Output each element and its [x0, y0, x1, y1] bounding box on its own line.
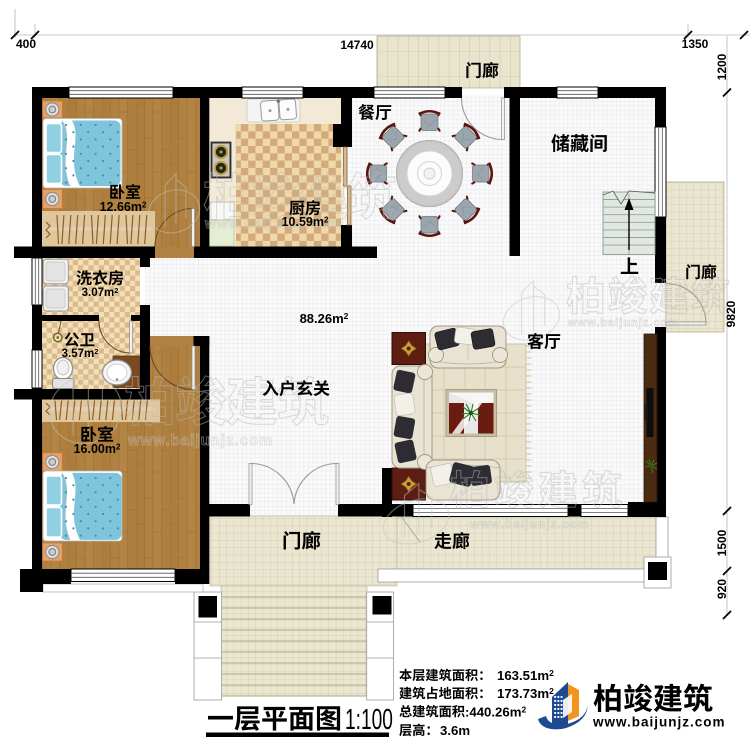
svg-text:14740: 14740: [340, 38, 374, 52]
svg-text:173.73m2: 173.73m2: [497, 686, 554, 701]
svg-text:www.baijunjz.com: www.baijunjz.com: [469, 517, 590, 531]
svg-text:1200: 1200: [715, 53, 729, 80]
svg-text::440.26m2: :440.26m2: [465, 704, 526, 719]
svg-text:1350: 1350: [682, 37, 709, 51]
svg-text:163.51m2: 163.51m2: [497, 668, 554, 683]
svg-text:3.07m2: 3.07m2: [82, 286, 119, 299]
svg-text:12.66m2: 12.66m2: [100, 200, 147, 214]
svg-text:9820: 9820: [724, 300, 738, 327]
svg-text:1500: 1500: [715, 529, 729, 556]
svg-text:3.57m2: 3.57m2: [62, 347, 99, 360]
svg-text:www.baijunjz.com: www.baijunjz.com: [127, 432, 273, 449]
svg-text:920: 920: [715, 579, 729, 599]
svg-text:3.6m: 3.6m: [440, 723, 470, 738]
svg-text:16.00m2: 16.00m2: [74, 442, 121, 456]
svg-text:1:100: 1:100: [345, 704, 393, 736]
svg-text:www.baijunjz.com: www.baijunjz.com: [567, 317, 679, 329]
svg-text:www.baijunjz.com: www.baijunjz.com: [592, 715, 726, 730]
svg-text:88.26m2: 88.26m2: [300, 311, 349, 326]
svg-text:10.59m2: 10.59m2: [282, 215, 329, 229]
svg-text:400: 400: [16, 37, 36, 51]
